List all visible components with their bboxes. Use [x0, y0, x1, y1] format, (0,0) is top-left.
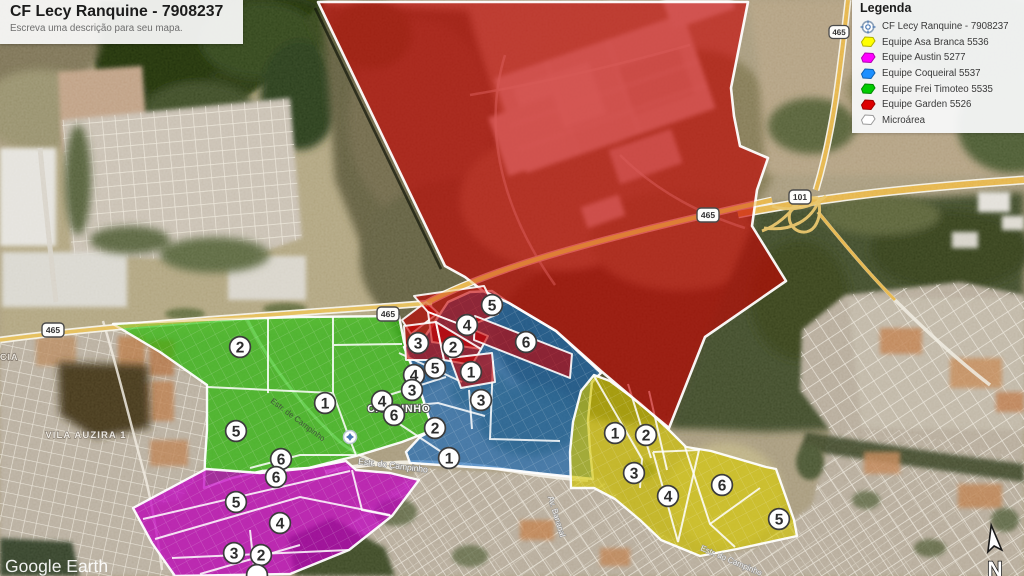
svg-text:3: 3 — [477, 393, 486, 410]
svg-text:5: 5 — [232, 495, 241, 512]
svg-text:2: 2 — [642, 428, 651, 445]
svg-text:5: 5 — [488, 298, 497, 315]
svg-text:VILA AUZIRA 1: VILA AUZIRA 1 — [45, 430, 126, 441]
svg-text:5: 5 — [775, 512, 784, 529]
svg-text:2: 2 — [236, 340, 245, 357]
svg-text:3: 3 — [414, 336, 423, 353]
svg-text:N: N — [987, 558, 1002, 576]
svg-text:4: 4 — [463, 318, 472, 335]
svg-text:465: 465 — [381, 309, 395, 319]
svg-text:5: 5 — [232, 424, 241, 441]
svg-text:6: 6 — [718, 478, 727, 495]
svg-text:1: 1 — [445, 451, 454, 468]
svg-text:4: 4 — [664, 489, 673, 506]
svg-text:CIA: CIA — [0, 352, 19, 362]
svg-text:2: 2 — [431, 421, 440, 438]
svg-text:6: 6 — [522, 335, 531, 352]
svg-text:1: 1 — [611, 426, 620, 443]
svg-text:2: 2 — [449, 340, 458, 357]
svg-text:5: 5 — [431, 361, 440, 378]
svg-text:3: 3 — [630, 466, 639, 483]
svg-text:1: 1 — [467, 365, 476, 382]
svg-text:3: 3 — [230, 546, 239, 563]
svg-text:Google Earth: Google Earth — [5, 556, 108, 576]
svg-text:465: 465 — [701, 210, 715, 220]
svg-text:4: 4 — [276, 516, 285, 533]
svg-text:2: 2 — [257, 548, 266, 565]
svg-text:465: 465 — [832, 28, 846, 37]
svg-text:101: 101 — [793, 192, 807, 202]
svg-text:6: 6 — [390, 408, 399, 425]
svg-text:3: 3 — [408, 383, 417, 400]
svg-text:6: 6 — [272, 470, 281, 487]
svg-text:1: 1 — [321, 396, 330, 413]
svg-text:465: 465 — [46, 325, 60, 335]
